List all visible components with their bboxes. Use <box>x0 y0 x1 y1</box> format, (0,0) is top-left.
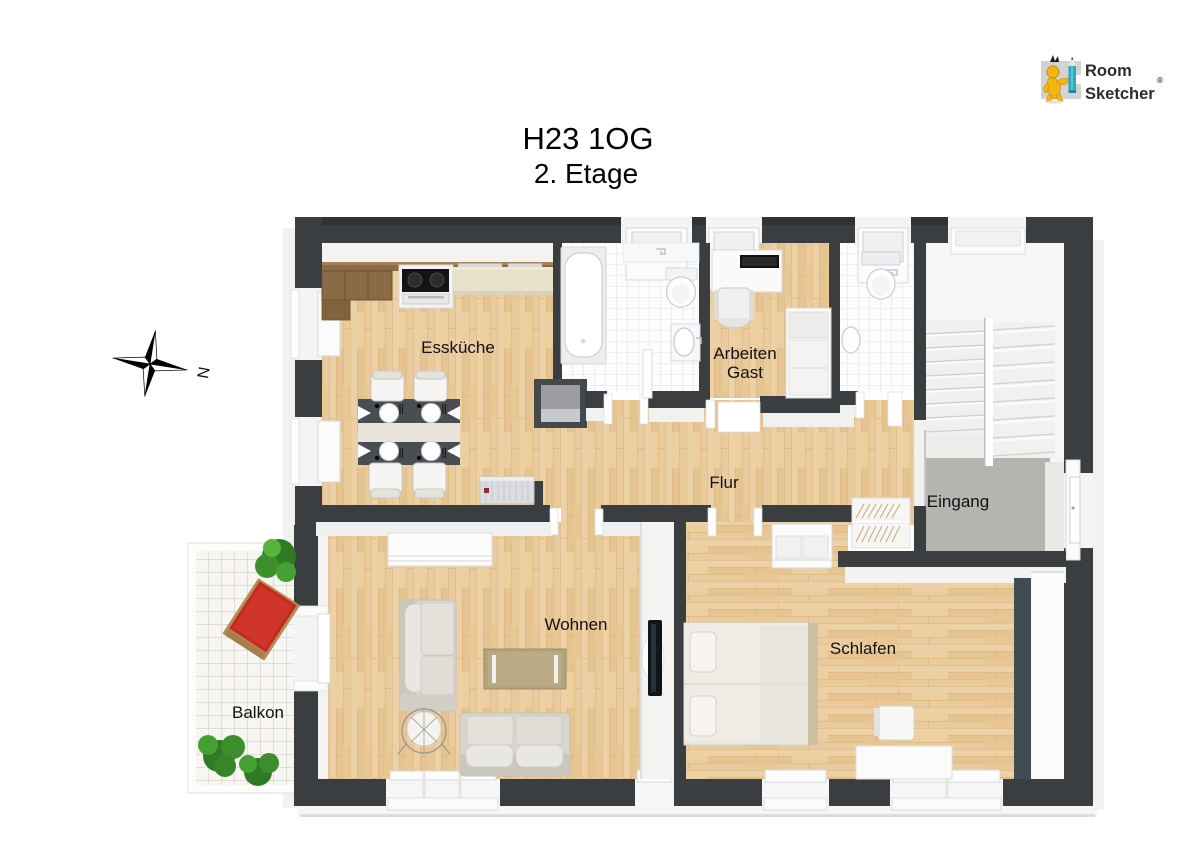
svg-text:Schlafen: Schlafen <box>830 639 896 658</box>
svg-text:Gast: Gast <box>727 363 763 382</box>
svg-text:Room: Room <box>1085 62 1132 80</box>
svg-text:®: ® <box>1157 76 1163 85</box>
svg-text:Wohnen: Wohnen <box>544 615 607 634</box>
svg-text:Essküche: Essküche <box>421 338 495 357</box>
svg-text:Balkon: Balkon <box>232 703 284 722</box>
svg-text:Arbeiten: Arbeiten <box>713 344 776 363</box>
svg-text:Flur: Flur <box>709 473 739 492</box>
svg-text:H23 1OG: H23 1OG <box>523 121 654 156</box>
svg-text:Eingang: Eingang <box>927 492 989 511</box>
svg-text:2. Etage: 2. Etage <box>534 158 638 189</box>
svg-text:Sketcher: Sketcher <box>1085 85 1155 103</box>
